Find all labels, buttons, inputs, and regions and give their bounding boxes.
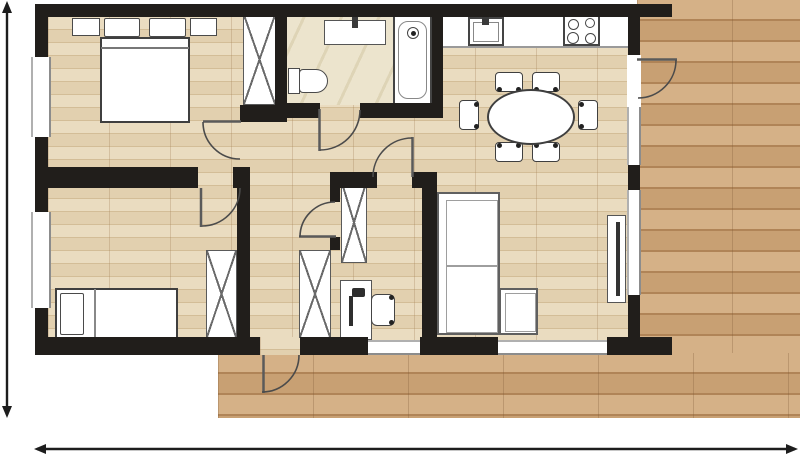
wall-office-left-1: [330, 188, 340, 202]
shower-head-dot-1: [411, 31, 416, 36]
pillow-left: [104, 18, 140, 37]
balcony-doorway-floor: [260, 337, 300, 355]
desk-lamp-head: [352, 288, 365, 297]
office-chair-dot-2: [389, 320, 394, 325]
dining-chair-left-dot-2: [474, 124, 479, 129]
window-right-lower: [627, 190, 641, 295]
desk-lamp-stem: [349, 296, 353, 326]
dining-chair-bottom-2-dot-2: [553, 143, 558, 148]
apartment-floor-plan: [0, 0, 800, 456]
wardrobe-bedroom2: [206, 250, 237, 338]
wall-bedroom1-nook: [240, 105, 287, 122]
dining-chair-right-dot-1: [579, 102, 584, 107]
wall-office-top-2: [412, 172, 437, 188]
entry-opening: [627, 55, 641, 107]
wall-bathroom-south-2: [360, 103, 432, 118]
window-bedroom2: [31, 212, 51, 308]
closet-hall: [299, 250, 331, 338]
dining-chair-top-1-dot-1: [497, 87, 502, 92]
single-bed-pillow: [60, 293, 84, 335]
window-living: [498, 340, 607, 355]
dining-chair-right-dot-2: [579, 124, 584, 129]
office-chair-dot-1: [389, 295, 394, 300]
nightstand-left: [72, 18, 100, 36]
dim-arrow-left: [34, 444, 46, 454]
window-bedroom1: [31, 57, 51, 137]
wall-bottom-2: [300, 337, 368, 355]
toilet-bowl: [299, 69, 328, 93]
dining-table: [487, 89, 575, 145]
dim-arrow-bottom: [2, 406, 12, 418]
window-office: [368, 340, 420, 355]
dim-arrow-top: [2, 1, 12, 13]
deck-balcony: [218, 353, 800, 418]
stove-burner-4: [585, 33, 596, 44]
nightstand-right: [190, 18, 217, 36]
wardrobe-office: [341, 182, 367, 263]
wall-office-left-2: [330, 237, 340, 250]
single-bed-fold-line: [94, 289, 96, 339]
kitchen-sink-inner: [473, 22, 499, 42]
double-bed: [100, 37, 190, 123]
wall-corridor-left: [237, 188, 250, 337]
sofa-chaise-cushion: [505, 293, 536, 332]
wall-bottom-1: [35, 337, 260, 355]
dining-chair-left-dot-1: [474, 102, 479, 107]
dining-chair-bottom-1-dot-1: [497, 143, 502, 148]
dim-arrow-right: [786, 444, 798, 454]
stove-burner-2: [585, 18, 595, 28]
wall-bathroom-left: [275, 17, 287, 118]
dining-chair-top-2-dot-2: [553, 87, 558, 92]
pillow-right: [149, 18, 186, 37]
wall-bathroom-kitchen: [432, 17, 443, 118]
wall-bedroom-divider: [35, 167, 198, 188]
double-bed-blanket-line: [101, 47, 189, 49]
tv-panel: [616, 222, 620, 296]
wall-office-top-1: [330, 172, 377, 188]
sofa-cushion-divider: [447, 265, 497, 267]
window-right-upper: [627, 107, 641, 165]
wall-top: [35, 4, 672, 17]
stove-burner-1: [568, 19, 579, 30]
wall-bedroom-divider-right: [233, 167, 250, 188]
wall-office-right: [422, 188, 437, 337]
wall-bathroom-south-1: [287, 103, 320, 118]
stove-burner-3: [567, 32, 579, 44]
wall-bottom-3: [420, 337, 498, 355]
wardrobe-bedroom1: [243, 14, 276, 105]
